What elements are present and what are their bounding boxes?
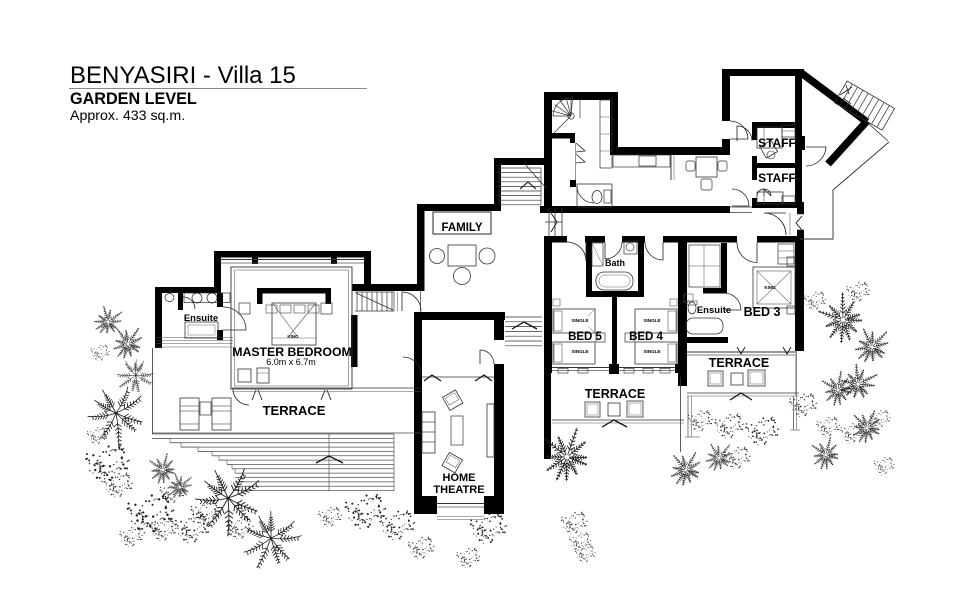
svg-text:TERRACE: TERRACE bbox=[263, 403, 326, 418]
svg-text:SINGLE: SINGLE bbox=[571, 349, 588, 354]
svg-text:STAFF: STAFF bbox=[758, 171, 796, 185]
svg-text:HOME: HOME bbox=[443, 472, 476, 484]
svg-text:Bath: Bath bbox=[605, 258, 625, 268]
svg-text:SINGLE: SINGLE bbox=[571, 318, 588, 323]
svg-text:SINGLE: SINGLE bbox=[643, 349, 660, 354]
svg-text:BED 4: BED 4 bbox=[629, 331, 663, 343]
svg-text:TERRACE: TERRACE bbox=[709, 356, 769, 370]
svg-text:KING: KING bbox=[287, 334, 299, 339]
svg-text:BENYASIRI - Villa 15: BENYASIRI - Villa 15 bbox=[70, 62, 296, 89]
svg-text:Ensuite: Ensuite bbox=[184, 313, 218, 324]
svg-text:Approx. 433 sq.m.: Approx. 433 sq.m. bbox=[70, 108, 185, 124]
svg-text:Ensuite: Ensuite bbox=[697, 305, 731, 316]
svg-text:TERRACE: TERRACE bbox=[585, 387, 645, 401]
svg-text:BED 5: BED 5 bbox=[568, 331, 602, 343]
svg-text:GARDEN LEVEL: GARDEN LEVEL bbox=[70, 90, 197, 108]
svg-text:BED 3: BED 3 bbox=[744, 305, 781, 319]
svg-text:FAMILY: FAMILY bbox=[441, 222, 482, 234]
svg-text:KING: KING bbox=[764, 285, 776, 290]
svg-text:SINGLE: SINGLE bbox=[643, 318, 660, 323]
svg-text:THEATRE: THEATRE bbox=[433, 484, 484, 496]
svg-text:6.0m x 6.7m: 6.0m x 6.7m bbox=[266, 357, 316, 367]
svg-text:STAFF: STAFF bbox=[758, 136, 796, 150]
